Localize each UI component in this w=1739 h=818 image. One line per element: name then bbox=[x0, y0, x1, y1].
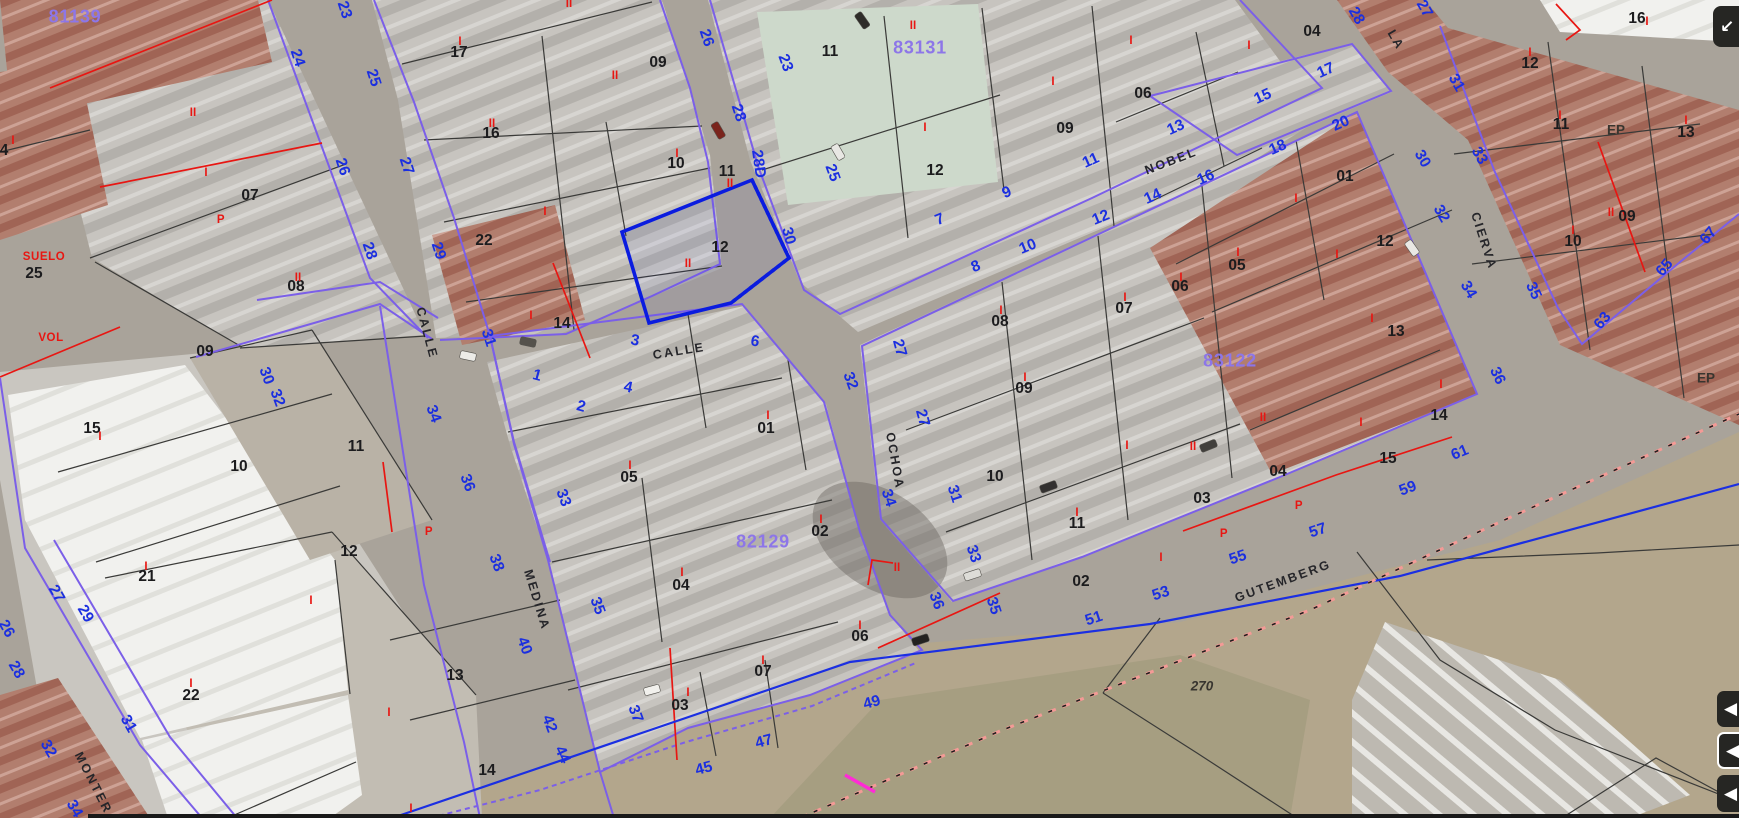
parcel-number: 14 bbox=[553, 315, 570, 333]
parcel-number: 12 bbox=[340, 543, 357, 561]
floor-count-mark: I bbox=[458, 36, 461, 48]
floor-count-mark: I bbox=[1159, 552, 1162, 564]
floor-count-mark: I bbox=[766, 410, 769, 422]
floor-count-mark: II bbox=[295, 272, 301, 284]
parcel-number: 05 bbox=[1228, 257, 1245, 275]
arrow-icon: ◀ bbox=[1724, 699, 1737, 719]
floor-count-mark: I bbox=[1294, 193, 1297, 205]
parcel-number: 10 bbox=[230, 458, 247, 476]
floor-count-mark: II bbox=[1190, 441, 1196, 453]
parcel-number: 01 bbox=[1336, 168, 1353, 186]
parcel-number: 14 bbox=[1430, 407, 1447, 425]
floor-count-mark: I bbox=[761, 655, 764, 667]
block-id: 81139 bbox=[49, 7, 102, 28]
floor-count-mark: I bbox=[1236, 247, 1239, 259]
floor-count-mark: I bbox=[144, 561, 147, 573]
parcel-number: 22 bbox=[475, 232, 492, 250]
red-annotation: VOL bbox=[38, 332, 63, 344]
floor-count-mark: I bbox=[1571, 225, 1574, 237]
parcel-number: 04 bbox=[1269, 463, 1286, 481]
parcel-number: 09 bbox=[1618, 208, 1635, 226]
floor-count-mark: I bbox=[1370, 313, 1373, 325]
floor-count-mark: I bbox=[189, 678, 192, 690]
floor-count-mark: I bbox=[1075, 507, 1078, 519]
arrow-icon: ◀ bbox=[1724, 784, 1737, 804]
floor-count-mark: II bbox=[894, 562, 900, 574]
parcel-number: 07 bbox=[241, 187, 258, 205]
red-annotation: SUELO bbox=[23, 251, 66, 263]
block-id: 82129 bbox=[736, 532, 790, 553]
parcel-number: 03 bbox=[1193, 490, 1210, 508]
floor-count-mark: I bbox=[387, 707, 390, 719]
red-annotation: P bbox=[1220, 528, 1228, 540]
floor-count-mark: I bbox=[1023, 372, 1026, 384]
floor-count-mark: I bbox=[686, 687, 689, 699]
floor-count-mark: I bbox=[923, 122, 926, 134]
floor-count-mark: I bbox=[1335, 249, 1338, 261]
floor-count-mark: II bbox=[1260, 412, 1266, 424]
floor-count-mark: II bbox=[612, 70, 618, 82]
floor-count-mark: I bbox=[858, 620, 861, 632]
parcel-number: 10 bbox=[986, 468, 1003, 486]
floor-count-mark: I bbox=[819, 514, 822, 526]
floor-count-mark: I bbox=[1129, 35, 1132, 47]
parcel-number: 12 bbox=[926, 162, 943, 180]
collapse-arrow-icon: ↙ bbox=[1720, 17, 1734, 37]
map-annotation: 270 bbox=[1191, 679, 1214, 694]
floor-count-mark: I bbox=[1247, 40, 1250, 52]
block-id: 83131 bbox=[893, 38, 947, 59]
parcel-number: 12 bbox=[711, 239, 728, 257]
side-tool-button-1[interactable]: ◀ bbox=[1717, 691, 1739, 727]
floor-count-mark: I bbox=[309, 595, 312, 607]
floor-count-mark: I bbox=[543, 206, 546, 218]
floor-count-mark: I bbox=[1558, 110, 1561, 122]
red-annotation: P bbox=[1295, 500, 1303, 512]
floor-count-mark: II bbox=[910, 20, 916, 32]
floor-count-mark: I bbox=[999, 305, 1002, 317]
side-tool-button-3[interactable]: ◀ bbox=[1717, 775, 1739, 812]
parcel-number: 16 bbox=[1628, 10, 1645, 28]
parcel-number: 15 bbox=[1379, 450, 1396, 468]
floor-count-mark: II bbox=[1608, 207, 1614, 219]
floor-count-mark: I bbox=[1528, 47, 1531, 59]
parcel-number: 13 bbox=[446, 667, 463, 685]
collapse-panel-button[interactable]: ↙ bbox=[1713, 6, 1739, 47]
floor-count-mark: II bbox=[489, 118, 495, 130]
parcel-number: 11 bbox=[822, 43, 838, 61]
parcel-number: 02 bbox=[1072, 573, 1089, 591]
floor-count-mark: I bbox=[675, 148, 678, 160]
floor-count-mark: I bbox=[11, 135, 14, 147]
floor-count-mark: I bbox=[1359, 417, 1362, 429]
parcel-number: 04 bbox=[672, 577, 689, 595]
street-number: 28D bbox=[747, 149, 769, 180]
floor-count-mark: I bbox=[1123, 292, 1126, 304]
parcel-number: 11 bbox=[348, 438, 364, 456]
parcel-number: 09 bbox=[649, 54, 666, 72]
map-annotation: EP bbox=[1607, 123, 1625, 138]
parcel-number: 09 bbox=[196, 343, 213, 361]
floor-count-mark: II bbox=[727, 178, 733, 190]
parcel-number: 4 bbox=[0, 142, 8, 160]
red-annotation: P bbox=[217, 214, 225, 226]
floor-count-mark: I bbox=[204, 167, 207, 179]
parcel-number: 06 bbox=[1134, 85, 1151, 103]
floor-count-mark: I bbox=[1645, 16, 1648, 28]
floor-count-mark: I bbox=[1179, 272, 1182, 284]
red-annotation: P bbox=[425, 526, 433, 538]
parcel-number: 09 bbox=[1056, 120, 1073, 138]
side-tool-button-2[interactable]: ◀ bbox=[1717, 732, 1739, 769]
parcel-number: 01 bbox=[757, 420, 774, 438]
floor-count-mark: I bbox=[98, 431, 101, 443]
floor-count-mark: I bbox=[1051, 76, 1054, 88]
floor-count-mark: I bbox=[529, 310, 532, 322]
map-annotation: EP bbox=[1697, 371, 1715, 386]
floor-count-mark: I bbox=[1439, 379, 1442, 391]
floor-count-mark: II bbox=[190, 107, 196, 119]
parcel-number: 14 bbox=[478, 762, 495, 780]
parcel-number: 12 bbox=[1376, 233, 1393, 251]
parcel-number: 13 bbox=[1387, 323, 1404, 341]
parcel-number: 04 bbox=[1303, 23, 1320, 41]
parcel-number: 03 bbox=[671, 697, 688, 715]
floor-count-mark: I bbox=[628, 460, 631, 472]
floor-count-mark: I bbox=[1684, 115, 1687, 127]
block-id: 83122 bbox=[1203, 351, 1257, 372]
floor-count-mark: I bbox=[1125, 440, 1128, 452]
floor-count-mark: II bbox=[685, 258, 691, 270]
floor-count-mark: I bbox=[680, 567, 683, 579]
arrow-icon: ◀ bbox=[1726, 741, 1739, 761]
floor-count-mark: II bbox=[566, 0, 572, 10]
bottom-edge-strip bbox=[88, 814, 1739, 818]
cadastral-map-viewport[interactable]: 81139831318212983122CALLEMEDINACALLEOCHO… bbox=[0, 0, 1739, 818]
parcel-number: 25 bbox=[25, 265, 42, 283]
